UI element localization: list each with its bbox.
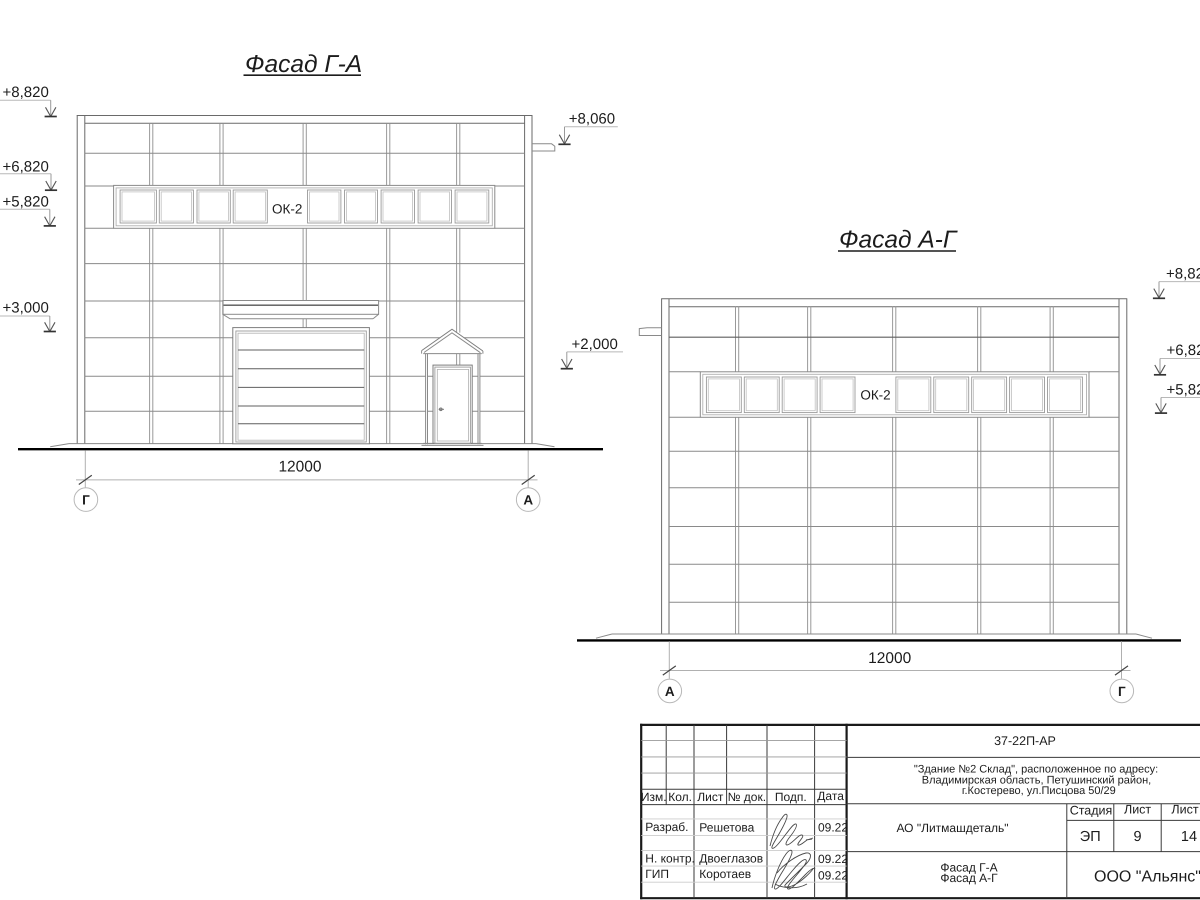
svg-text:+5,820: +5,820 [3, 193, 49, 210]
svg-text:+5,820: +5,820 [1167, 381, 1200, 398]
svg-text:+6,820: +6,820 [1167, 342, 1200, 359]
svg-text:Г: Г [82, 493, 90, 508]
svg-text:+3,000: +3,000 [3, 299, 49, 316]
svg-text:Фасад А-Г: Фасад А-Г [940, 871, 998, 885]
svg-text:ОК-2: ОК-2 [860, 387, 890, 402]
svg-text:Лист: Лист [1124, 803, 1151, 817]
svg-text:ОК-2: ОК-2 [272, 202, 302, 217]
svg-text:09.22: 09.22 [818, 868, 848, 882]
svg-text:Г: Г [1118, 684, 1126, 699]
svg-text:Подп.: Подп. [775, 790, 807, 804]
svg-text:А: А [665, 684, 675, 699]
svg-text:Двоеглазов: Двоеглазов [699, 851, 763, 865]
svg-text:Стадия: Стадия [1070, 803, 1113, 817]
svg-text:+8,060: +8,060 [569, 111, 615, 128]
svg-text:12000: 12000 [278, 459, 321, 476]
svg-text:Фасад Г-А: Фасад Г-А [245, 51, 362, 78]
svg-text:+8,820: +8,820 [1166, 266, 1200, 283]
svg-text:Коротаев: Коротаев [699, 867, 751, 881]
svg-text:Лист: Лист [1171, 803, 1198, 817]
svg-text:№ док.: № док. [728, 790, 766, 804]
svg-text:АО "Литмашдеталь": АО "Литмашдеталь" [896, 821, 1008, 835]
svg-text:Решетова: Решетова [699, 820, 754, 834]
svg-text:Н. контр.: Н. контр. [645, 852, 695, 866]
svg-text:Дата: Дата [817, 789, 844, 803]
svg-text:ЭП: ЭП [1080, 829, 1101, 845]
svg-text:+6,820: +6,820 [3, 159, 49, 176]
svg-text:ГИП: ГИП [645, 867, 669, 881]
svg-text:ООО "Альянс": ООО "Альянс" [1094, 869, 1200, 886]
svg-text:12000: 12000 [868, 650, 911, 667]
svg-text:37-22П-АР: 37-22П-АР [994, 734, 1056, 748]
svg-text:14: 14 [1181, 829, 1197, 845]
svg-text:09.22: 09.22 [818, 852, 848, 866]
svg-text:Кол.: Кол. [668, 790, 692, 804]
svg-text:+2,000: +2,000 [572, 336, 618, 353]
svg-text:+8,820: +8,820 [3, 84, 49, 101]
svg-text:А: А [523, 493, 533, 508]
svg-text:Изм.: Изм. [641, 790, 667, 804]
svg-text:09.22: 09.22 [818, 821, 848, 835]
svg-text:9: 9 [1134, 829, 1142, 845]
svg-text:Лист: Лист [697, 790, 724, 804]
svg-text:г.Костерево, ул.Писцова 50/29: г.Костерево, ул.Писцова 50/29 [962, 785, 1116, 797]
svg-text:Фасад А-Г: Фасад А-Г [839, 227, 958, 254]
svg-text:Разраб.: Разраб. [645, 820, 688, 834]
